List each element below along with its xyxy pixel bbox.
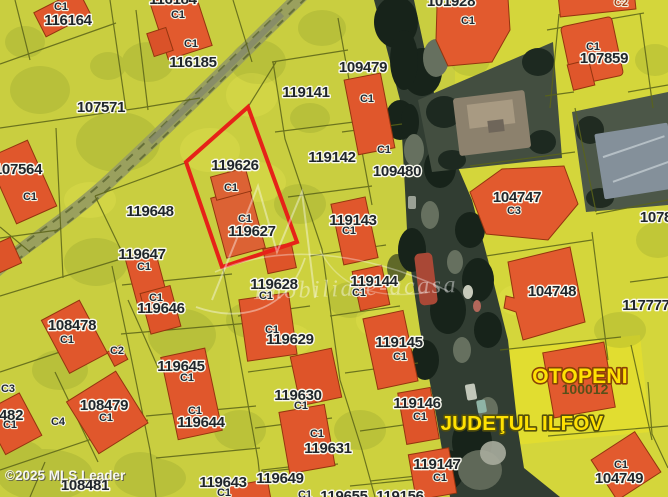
svg-text:107858: 107858: [640, 209, 668, 226]
svg-text:C1: C1: [265, 324, 279, 336]
svg-text:108478: 108478: [48, 317, 96, 334]
svg-text:C1: C1: [180, 372, 194, 384]
svg-text:119142: 119142: [308, 149, 355, 166]
svg-text:C1: C1: [393, 351, 407, 363]
svg-text:C1: C1: [217, 487, 231, 497]
svg-text:C1: C1: [99, 412, 113, 424]
svg-text:101928: 101928: [427, 0, 475, 10]
svg-text:119648: 119648: [126, 203, 173, 220]
svg-text:119147: 119147: [413, 456, 460, 473]
svg-text:119146: 119146: [393, 395, 440, 412]
svg-text:119156: 119156: [376, 488, 423, 497]
svg-text:C1: C1: [413, 411, 427, 423]
svg-text:109479: 109479: [339, 59, 387, 76]
svg-text:119649: 119649: [256, 470, 303, 487]
svg-text:119631: 119631: [304, 440, 351, 457]
svg-text:C1: C1: [60, 334, 74, 346]
svg-text:C2: C2: [614, 0, 628, 9]
svg-text:116184: 116184: [149, 0, 197, 8]
svg-text:109480: 109480: [373, 163, 421, 180]
svg-text:119644: 119644: [177, 414, 225, 431]
svg-text:C4: C4: [51, 416, 66, 428]
svg-text:104749: 104749: [595, 470, 643, 487]
svg-text:C1: C1: [360, 93, 374, 105]
svg-text:C1: C1: [298, 489, 312, 497]
svg-text:C1: C1: [294, 400, 308, 412]
svg-text:C1: C1: [224, 182, 238, 194]
svg-text:119655: 119655: [320, 488, 367, 497]
svg-text:107564: 107564: [0, 161, 43, 178]
svg-text:107571: 107571: [77, 99, 125, 116]
svg-text:C1: C1: [184, 38, 198, 50]
svg-text:C3: C3: [507, 205, 521, 217]
svg-text:C1: C1: [377, 144, 391, 156]
svg-text:119627: 119627: [228, 223, 275, 240]
svg-text:116164: 116164: [44, 12, 92, 29]
svg-text:104748: 104748: [528, 283, 576, 300]
svg-text:C1: C1: [461, 15, 475, 27]
svg-text:C1: C1: [342, 225, 356, 237]
svg-text:1177771: 1177771: [622, 297, 668, 314]
svg-text:OTOPENI: OTOPENI: [532, 365, 628, 388]
svg-text:C1: C1: [259, 290, 273, 302]
svg-text:119626: 119626: [211, 157, 258, 174]
svg-text:119646: 119646: [137, 300, 184, 317]
svg-text:C2: C2: [110, 345, 124, 357]
svg-text:119628: 119628: [250, 276, 297, 293]
svg-text:JUDEŢUL ILFOV: JUDEŢUL ILFOV: [441, 412, 604, 435]
svg-text:©2025 MLS Leader: ©2025 MLS Leader: [5, 468, 126, 483]
svg-text:C3: C3: [1, 383, 15, 395]
svg-text:C1: C1: [433, 472, 447, 484]
svg-text:107859: 107859: [580, 50, 628, 67]
svg-text:119144: 119144: [350, 273, 398, 290]
svg-text:119145: 119145: [375, 334, 422, 351]
svg-text:116185: 116185: [169, 54, 216, 71]
svg-text:104747: 104747: [493, 189, 541, 206]
svg-text:C1: C1: [137, 261, 151, 273]
svg-text:C1: C1: [310, 428, 324, 440]
svg-text:C1: C1: [23, 191, 37, 203]
svg-text:C1: C1: [54, 1, 68, 13]
svg-text:119141: 119141: [282, 84, 329, 101]
svg-text:C1: C1: [3, 419, 17, 431]
svg-text:C1: C1: [171, 9, 185, 21]
